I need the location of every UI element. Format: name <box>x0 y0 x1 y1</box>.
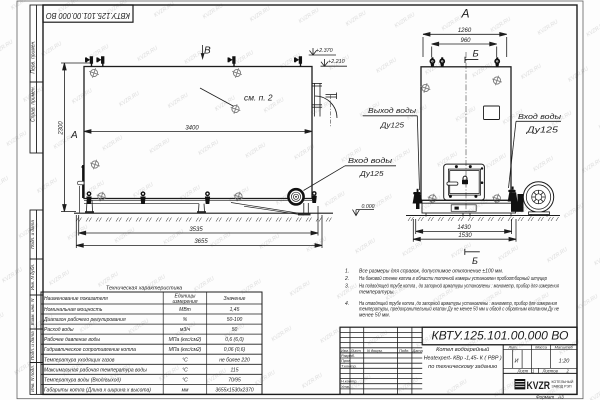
svg-text:115: 115 <box>231 367 239 373</box>
svg-text:Котел водогрейный: Котел водогрейный <box>436 346 489 353</box>
svg-text:Максимальная рабочая температу: Максимальная рабочая температура воды <box>44 367 147 373</box>
svg-text:На боковой стенке котла в обла: На боковой стенке котла в области топочн… <box>359 275 547 282</box>
svg-text:Значение: Значение <box>224 296 246 302</box>
svg-text:1: 1 <box>532 369 534 374</box>
svg-text:Ду125: Ду125 <box>526 126 559 135</box>
svg-text:МПа (кгс/см2): МПа (кгс/см2) <box>169 337 202 343</box>
svg-text:0.000: 0.000 <box>362 204 375 210</box>
svg-text:Б: Б <box>473 48 479 59</box>
svg-text:Все размеры для справок, допус: Все размеры для справок, допустимое откл… <box>359 269 503 275</box>
svg-text:Наименование показателя: Наименование показателя <box>44 296 108 302</box>
svg-text:Подп. и дата: Подп. и дата <box>30 331 35 360</box>
svg-text:КВТУ.125.101.00.000 ВО: КВТУ.125.101.00.000 ВО <box>432 329 569 343</box>
svg-text:3535: 3535 <box>189 227 203 233</box>
svg-text:°С: °С <box>182 357 188 363</box>
svg-text:%: % <box>183 317 188 323</box>
svg-text:Выход воды: Выход воды <box>368 107 417 115</box>
svg-text:+2.210: +2.210 <box>328 59 345 65</box>
svg-text:Справ. примен.: Справ. примен. <box>30 86 36 122</box>
svg-text:Гидравлическое сопротивление к: Гидравлическое сопротивление котла <box>44 347 136 353</box>
svg-text:А: А <box>70 130 78 141</box>
svg-text:50: 50 <box>232 327 238 333</box>
svg-text:1.: 1. <box>345 269 349 275</box>
svg-text:+2.370: +2.370 <box>316 48 333 54</box>
svg-text:Взам. инв. N: Взам. инв. N <box>30 298 35 325</box>
svg-text:КОТЕЛЬНЫЙ: КОТЕЛЬНЫЙ <box>552 380 574 384</box>
svg-text:Ду125: Ду125 <box>380 120 405 129</box>
svg-text:1530: 1530 <box>458 233 472 239</box>
svg-text:Лит.: Лит. <box>507 345 517 350</box>
svg-text:Техническая характеристика: Техническая характеристика <box>106 286 182 292</box>
svg-text:мм: мм <box>182 387 189 393</box>
svg-text:2300: 2300 <box>59 121 65 136</box>
svg-text:измерения: измерения <box>172 299 197 305</box>
svg-text:Формат: Формат <box>536 395 554 400</box>
svg-text:1430: 1430 <box>457 225 471 231</box>
svg-text:Номинальная мощность: Номинальная мощность <box>44 307 103 313</box>
svg-text:Утв.: Утв. <box>341 384 350 389</box>
svg-text:°С: °С <box>182 377 188 383</box>
svg-text:МПа (кгс/см2): МПа (кгс/см2) <box>169 347 202 353</box>
svg-text:Ду125: Ду125 <box>359 169 384 178</box>
svg-text:70/95: 70/95 <box>228 377 241 383</box>
svg-text:МВт: МВт <box>179 307 191 313</box>
svg-text:Температура воды (Вход/выход): Температура воды (Вход/выход) <box>44 377 121 383</box>
svg-text:Подп.: Подп. <box>399 348 409 353</box>
svg-text:Габариты котла (Длина х ширина: Габариты котла (Длина х ширина х высота) <box>44 387 151 393</box>
svg-text:3400: 3400 <box>185 125 199 131</box>
svg-text:Диапазон рабочего регулировани: Диапазон рабочего регулирования <box>43 317 126 323</box>
svg-text:Инв. N дубл.: Инв. N дубл. <box>30 264 35 291</box>
svg-text:И: И <box>515 359 519 365</box>
svg-text:50-100: 50-100 <box>227 317 243 323</box>
svg-text:KVZR: KVZR <box>527 380 551 392</box>
svg-text:0,06 (0,6): 0,06 (0,6) <box>224 347 246 353</box>
svg-text:температуры.: температуры. <box>359 289 395 295</box>
svg-text:3.: 3. <box>345 284 349 290</box>
svg-text:см. п. 2: см. п. 2 <box>244 93 273 103</box>
svg-text:не более 220: не более 220 <box>219 357 250 363</box>
svg-text:менее 50 мм.: менее 50 мм. <box>359 312 390 318</box>
svg-text:по техническому заданию: по техническому заданию <box>428 364 498 370</box>
svg-text:2.: 2. <box>344 276 349 282</box>
svg-text:1260: 1260 <box>458 28 472 34</box>
svg-text:КВТУ.125.101.00.000 ВО: КВТУ.125.101.00.000 ВО <box>45 11 130 20</box>
svg-text:1:20: 1:20 <box>559 359 571 365</box>
svg-text:Б: Б <box>472 256 478 266</box>
svg-text:960: 960 <box>460 38 471 44</box>
svg-text:Листов: Листов <box>542 369 559 374</box>
svg-text:°С: °С <box>182 367 188 373</box>
svg-text:4.: 4. <box>345 301 349 307</box>
svg-text:Вход воды: Вход воды <box>518 113 562 121</box>
svg-text:1,45: 1,45 <box>230 307 240 313</box>
svg-text:3655: 3655 <box>194 239 208 245</box>
svg-text:Расход воды: Расход воды <box>44 327 74 333</box>
svg-text:ЗАВОД РЭП: ЗАВОД РЭП <box>552 385 573 389</box>
svg-text:Инв. N подл.: Инв. N подл. <box>30 365 35 392</box>
svg-text:Вход воды: Вход воды <box>348 157 393 165</box>
svg-text:А: А <box>461 7 470 21</box>
svg-text:Подп. и дата: Подп. и дата <box>30 220 35 249</box>
svg-text:м3/ч: м3/ч <box>180 327 191 333</box>
svg-text:0,6 (6,0): 0,6 (6,0) <box>225 337 244 343</box>
svg-text:N докум.: N докум. <box>367 348 383 353</box>
svg-text:Лист: Лист <box>517 369 529 374</box>
svg-text:Перв. примен.: Перв. примен. <box>30 40 36 73</box>
svg-text:Температура уходящих газов: Температура уходящих газов <box>44 357 115 363</box>
svg-text:Масштаб: Масштаб <box>555 345 574 350</box>
svg-text:А3: А3 <box>557 395 564 400</box>
svg-text:Рабочее давление воды: Рабочее давление воды <box>44 337 100 343</box>
svg-text:Масса: Масса <box>535 345 547 350</box>
svg-text:Дата: Дата <box>412 348 424 353</box>
svg-text:Heatexpert- КВр -1,45- К ( РВР: Heatexpert- КВр -1,45- К ( РВР ) <box>424 356 502 362</box>
svg-text:В: В <box>204 46 211 57</box>
svg-text:3655х1530х2370: 3655х1530х2370 <box>215 387 254 393</box>
svg-text:Т.контр.: Т.контр. <box>341 363 357 368</box>
